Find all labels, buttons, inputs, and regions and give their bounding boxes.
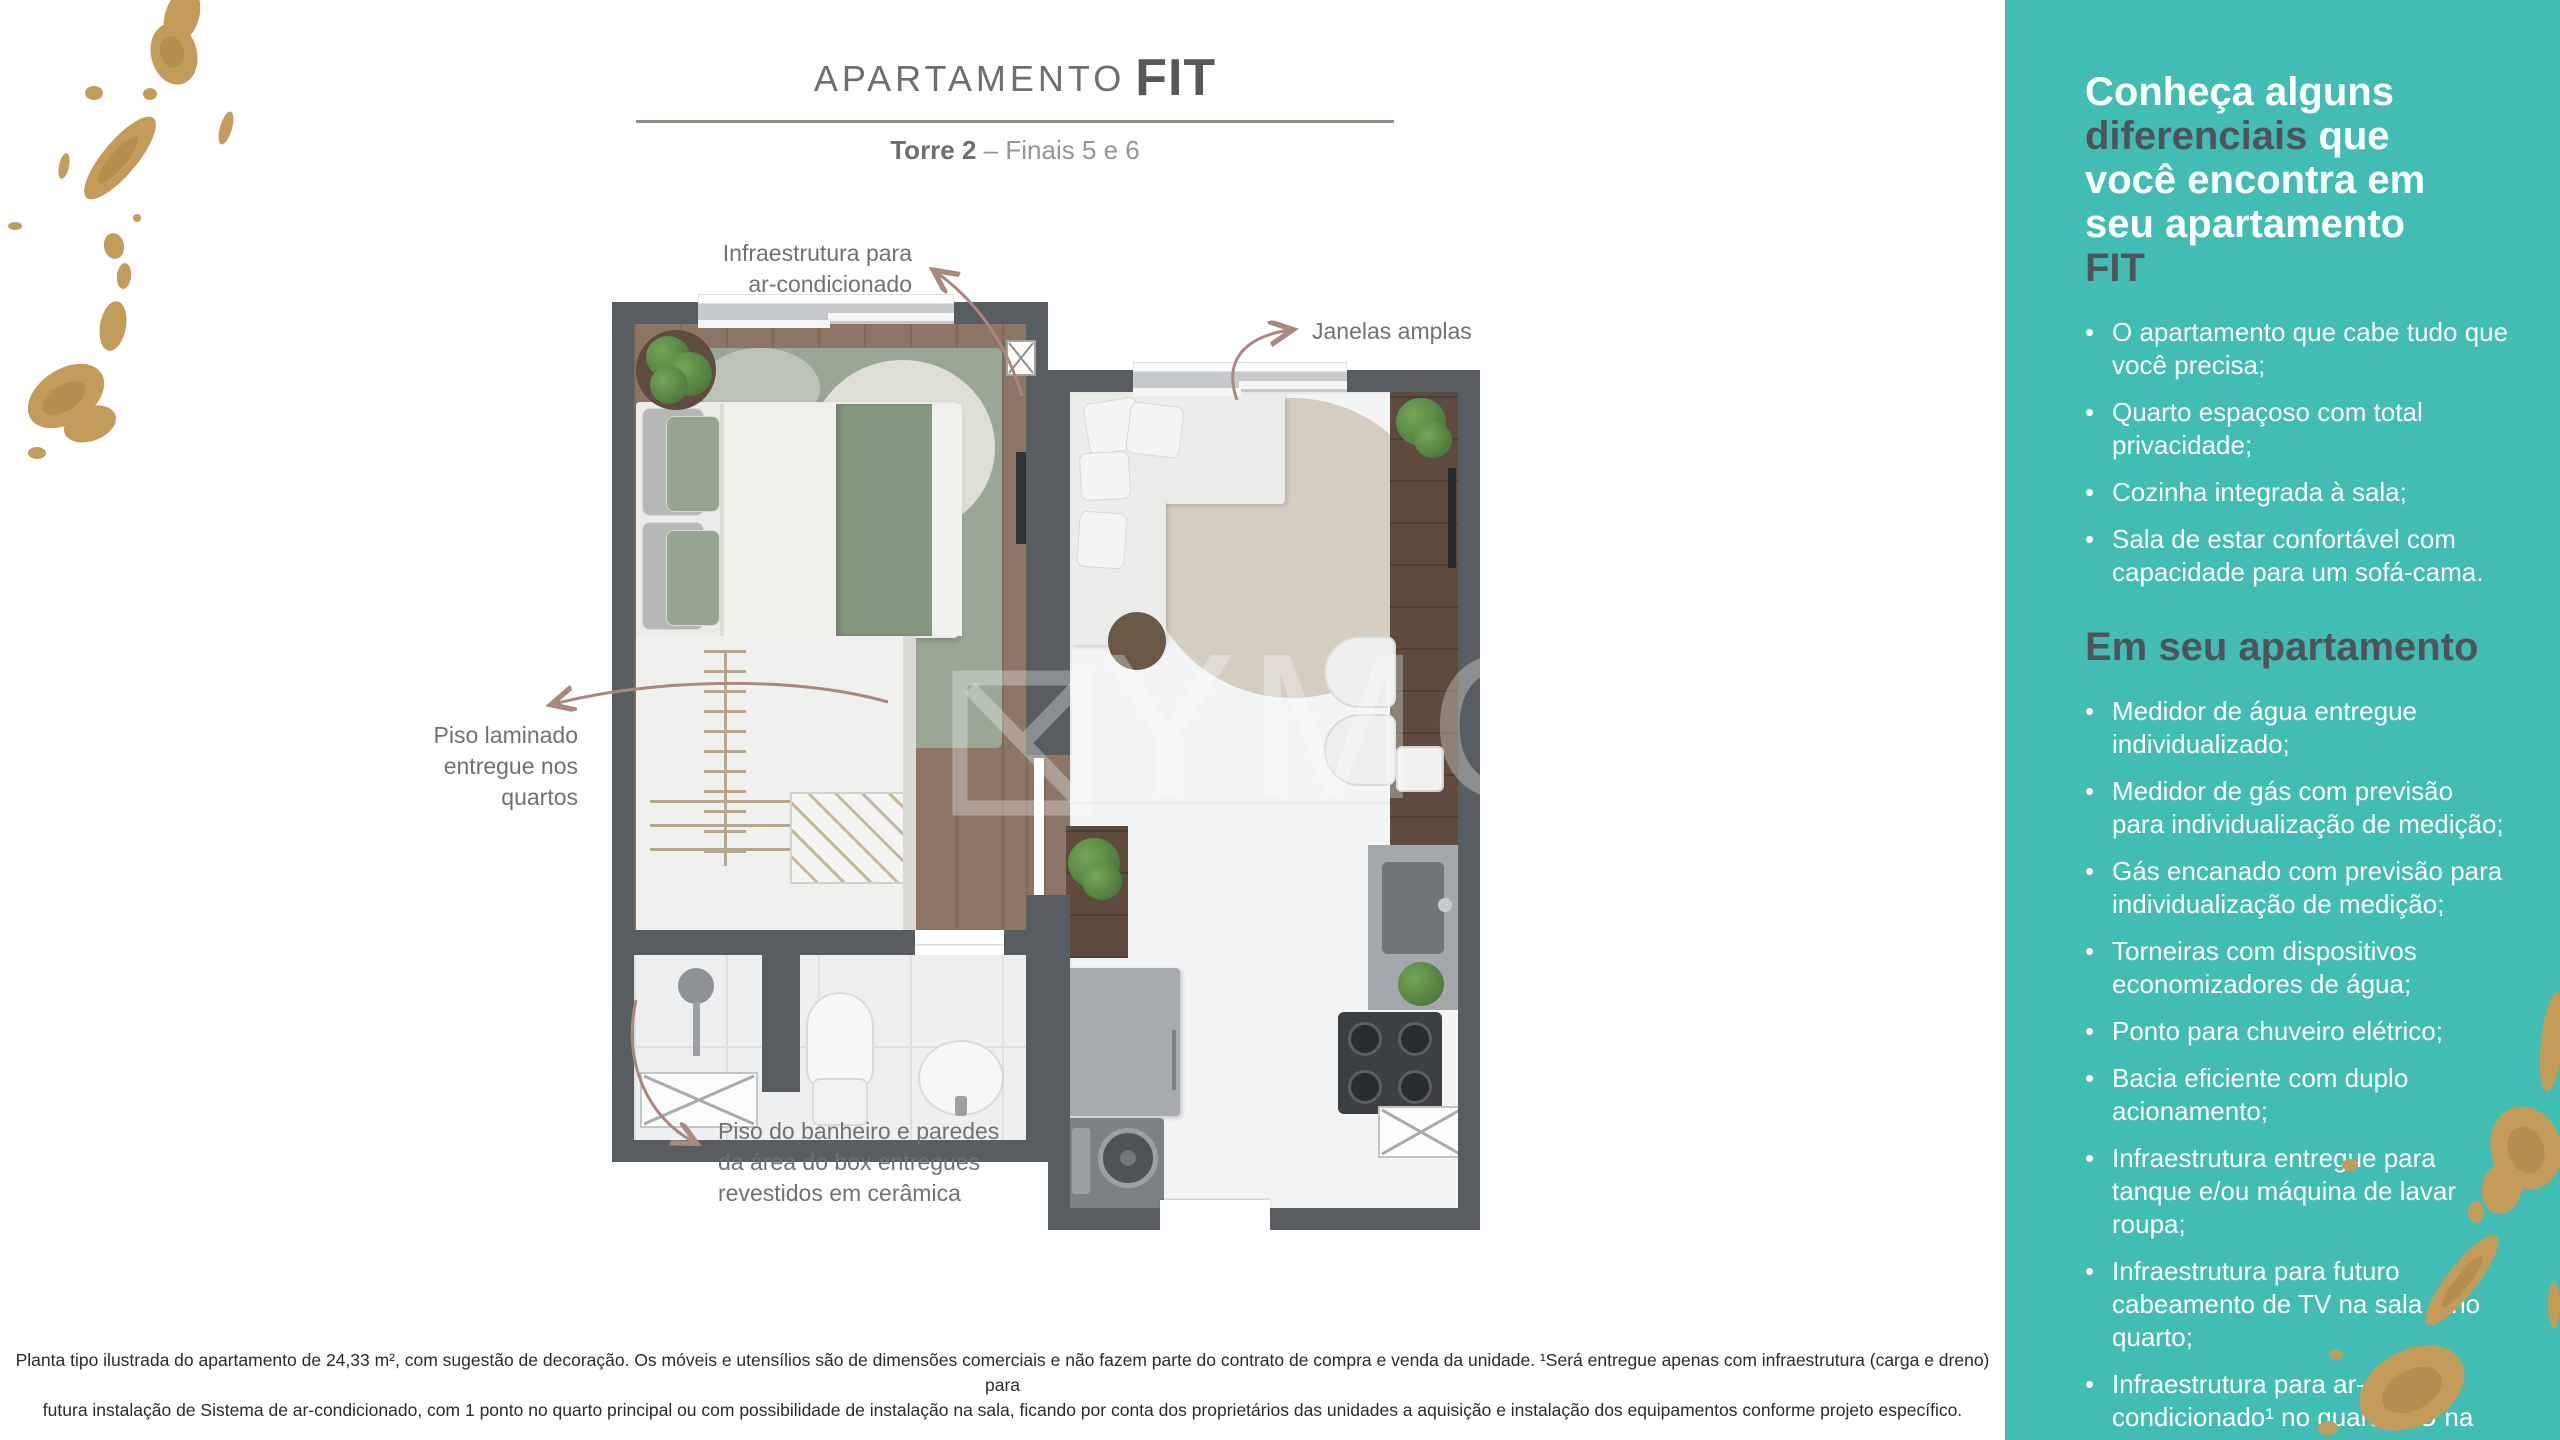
ac-point-marker [1006,340,1036,376]
shower-stem [693,1002,700,1056]
toilet [806,992,874,1090]
burner [1398,1022,1432,1056]
kitchen-sink [1382,862,1444,954]
footer-line1: Planta tipo ilustrada do apartamento de … [0,1348,2005,1398]
washer-panel [1072,1128,1090,1194]
bed-pillow [666,530,720,626]
title-prefix: APARTAMENTO [814,58,1125,99]
washer-drum-center [1120,1150,1136,1166]
feature-item: Gás encanado com previsão para individua… [2085,855,2509,921]
living-tv [1448,468,1456,568]
page-title: APARTAMENTOFIT [515,48,1515,108]
annotation-ac: Infraestrutura para ar-condicionado [723,238,912,300]
stool [1324,714,1396,786]
footer-disclaimer: Planta tipo ilustrada do apartamento de … [0,1348,2005,1423]
bedroom-window-pane [828,313,954,321]
wall [634,930,915,955]
feature-item: Medidor de água entregue individualizado… [2085,695,2509,761]
differentials-list: O apartamento que cabe tudo que você pre… [2085,316,2509,589]
feature-item: Quarto espaçoso com total privacidade; [2085,396,2509,462]
wardrobe-hatch-unit [790,792,906,884]
stove [1338,1012,1442,1114]
annotation-bath-line3: revestidos em cerâmica [718,1178,999,1209]
feature-item: Sala de estar confortável com capacidade… [2085,523,2509,589]
living-window-sill [1133,362,1347,372]
annotation-bath-line1: Piso do banheiro e paredes [718,1116,999,1147]
bedroom-door [1034,758,1044,895]
sidebar-heading-l4: seu apartamento [2085,202,2405,246]
feature-item: Cozinha integrada à sala; [2085,476,2509,509]
sidebar-heading-l2-rest: que [2307,114,2389,158]
bed-pillow [666,416,720,512]
annotation-ac-line1: Infraestrutura para [723,238,912,269]
wall [1048,1208,1160,1230]
doorway-floor [1026,755,1070,895]
gold-foil-splash-top-left [0,0,260,500]
shower-head [678,968,714,1004]
side-table [1108,612,1166,670]
counter-plant [1414,422,1452,458]
title-emphasis: FIT [1135,49,1216,107]
annotation-bath: Piso do banheiro e paredes da área do bo… [718,1116,999,1209]
closet-partition [903,636,916,930]
feature-item: O apartamento que cabe tudo que você pre… [2085,316,2509,382]
sofa-pillow [1076,510,1128,569]
page: APARTAMENTOFIT Torre 2 – Finais 5 e 6 [0,0,2560,1440]
annotation-ac-line2: ar-condicionado [723,269,912,300]
annotation-floor-line3: quartos [434,782,578,813]
gold-foil-splash-bottom-right [2280,960,2560,1440]
burner [1348,1022,1382,1056]
bed-throw [836,404,932,636]
x-mark-icon [1008,342,1034,374]
wall [1048,370,1070,755]
wall [1026,895,1048,1162]
wall [1270,1208,1480,1230]
kitchen-plant [1398,962,1444,1006]
shower-partition [762,955,800,1092]
bedroom-window-pane [698,320,830,328]
annotation-floor-line2: entregue nos [434,751,578,782]
feature-item: Medidor de gás com previsão para individ… [2085,775,2509,841]
annotation-floor-line1: Piso laminado [434,720,578,751]
sink-faucet [955,1096,967,1116]
wall [1004,930,1026,955]
living-window-pane [1133,388,1241,396]
header: APARTAMENTOFIT Torre 2 – Finais 5 e 6 [515,48,1515,166]
refrigerator-handle [1172,1030,1176,1090]
bathroom-door [915,934,1004,944]
burner [1348,1070,1382,1104]
refrigerator [1066,968,1180,1116]
wall [1458,370,1480,1230]
subtitle-units: – Finais 5 e 6 [976,135,1139,165]
bedroom-tv [1016,452,1026,544]
living-window-pane [1239,381,1347,389]
sidebar-heading-l1: Conheça alguns [2085,70,2394,114]
sidebar-heading: Conheça alguns diferenciais que você enc… [2085,70,2525,290]
sidebar-heading-l5-dark: FIT [2085,246,2145,290]
footer-line2: futura instalação de Sistema de ar-condi… [0,1398,2005,1423]
kitchen-service-box [1378,1106,1464,1158]
sofa-pillow [1125,401,1185,459]
sidebar-section2-heading: Em seu apartamento [2085,625,2525,669]
sidebar-heading-l3: você encontra em [2085,158,2425,202]
console-plant [1082,862,1122,900]
burner [1398,1070,1432,1104]
sidebar-heading-l2-dark: diferenciais [2085,114,2307,158]
kitchen-faucet [1438,898,1452,912]
bedroom-plant [650,366,688,404]
subtitle: Torre 2 – Finais 5 e 6 [515,135,1515,166]
subtitle-tower: Torre 2 [890,135,976,165]
annotation-windows: Janelas amplas [1312,316,1472,347]
annotation-floor: Piso laminado entregue nos quartos [434,720,578,813]
entry-door [1160,1200,1270,1210]
annotation-windows-label: Janelas amplas [1312,316,1472,347]
title-divider [636,120,1394,123]
wall [612,302,634,1162]
sofa-pillow [1079,451,1131,502]
counter-appliance [1396,746,1444,792]
stool [1324,636,1396,708]
wall [1048,895,1070,1230]
annotation-bath-line2: da área do box entregues [718,1147,999,1178]
wardrobe [636,636,904,930]
x-mark-icon [1380,1108,1462,1156]
